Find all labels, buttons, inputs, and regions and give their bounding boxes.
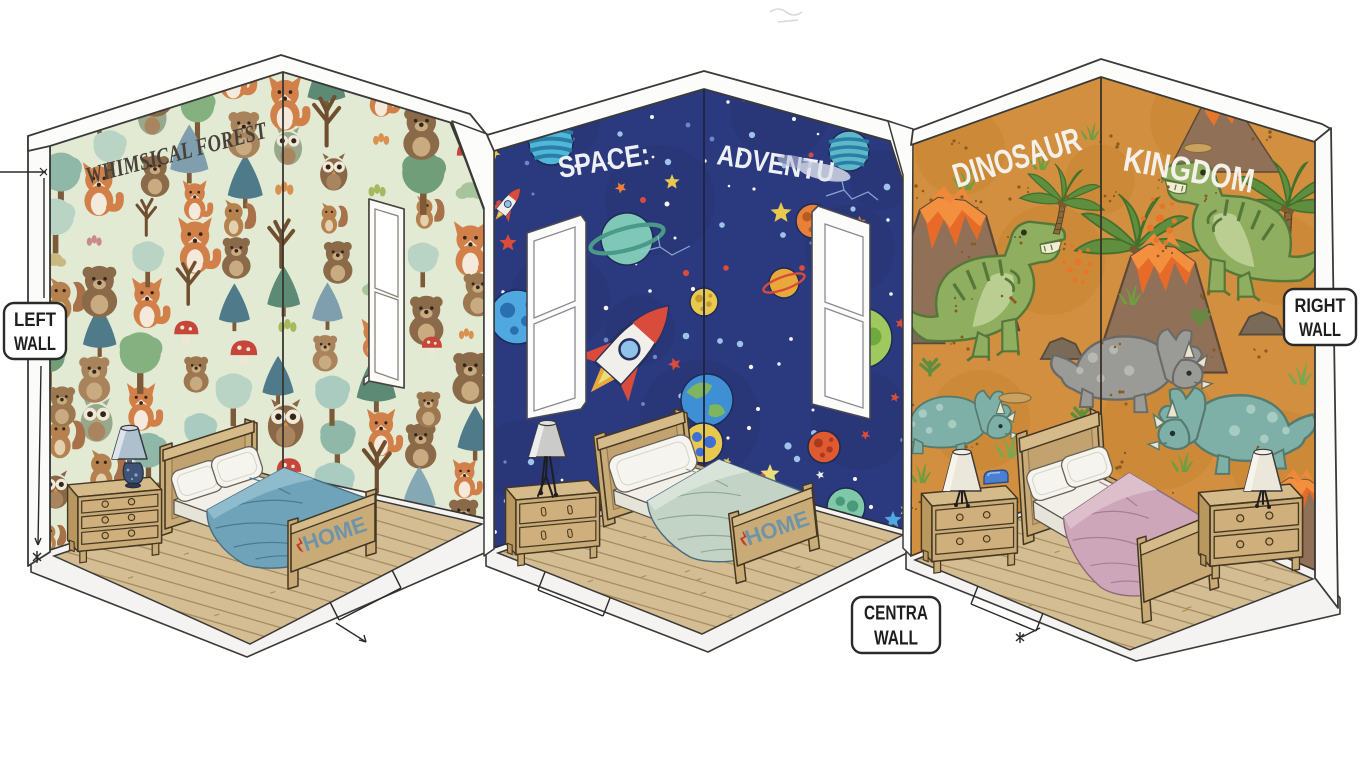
svg-text:LEFT: LEFT	[14, 310, 56, 331]
svg-text:WALL: WALL	[874, 628, 918, 650]
svg-text:RIGHT: RIGHT	[1295, 296, 1346, 317]
svg-text:WALL: WALL	[1299, 320, 1341, 341]
svg-text:WALL: WALL	[14, 334, 56, 355]
svg-text:CENTRA: CENTRA	[864, 603, 928, 625]
